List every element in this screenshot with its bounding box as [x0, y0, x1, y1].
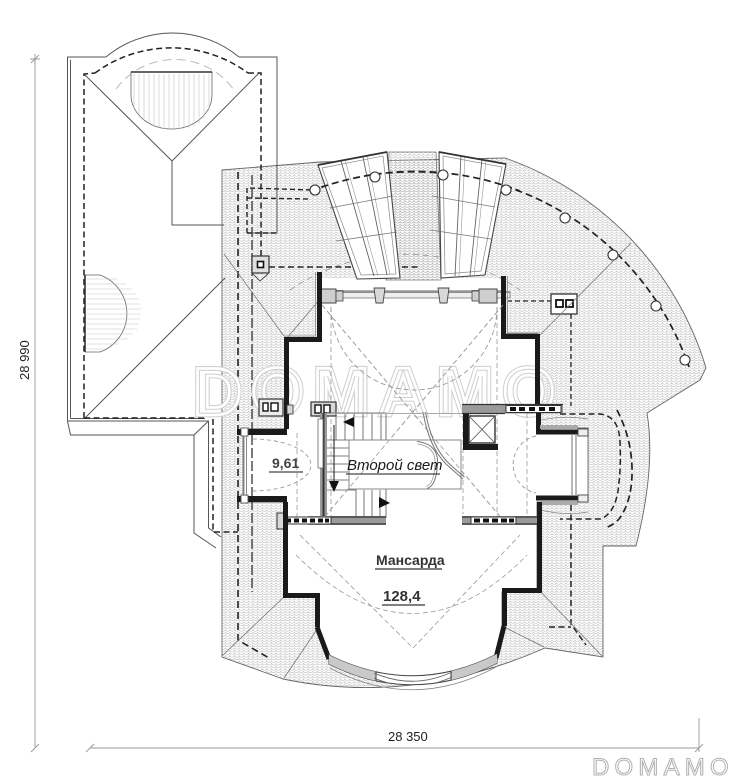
svg-text:28 350: 28 350	[388, 729, 428, 744]
svg-text:9,61: 9,61	[272, 455, 299, 471]
svg-text:28 990: 28 990	[17, 340, 32, 380]
svg-text:Второй свет: Второй свет	[347, 457, 443, 474]
svg-text:Мансарда: Мансарда	[376, 552, 445, 568]
svg-text:DOMAMO: DOMAMO	[193, 354, 564, 430]
svg-text:128,4: 128,4	[383, 588, 421, 605]
svg-text:DOMAMO: DOMAMO	[592, 754, 734, 781]
